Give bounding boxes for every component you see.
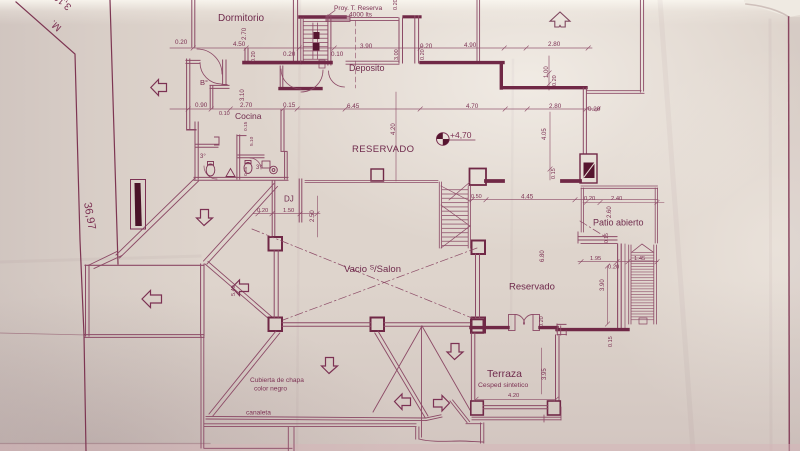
- svg-text:0.15: 0.15: [604, 233, 610, 243]
- svg-text:0.20: 0.20: [584, 196, 595, 202]
- svg-text:3°: 3°: [200, 154, 206, 160]
- svg-text:3.00: 3.00: [394, 49, 400, 60]
- svg-text:0.90: 0.90: [195, 102, 208, 109]
- svg-text:0.20: 0.20: [251, 51, 257, 62]
- svg-text:3.90: 3.90: [360, 43, 373, 50]
- svg-text:0.20: 0.20: [552, 75, 558, 86]
- svg-text:1.95: 1.95: [590, 256, 601, 262]
- svg-text:0.20: 0.20: [539, 316, 545, 327]
- svg-text:3.95: 3.95: [542, 368, 548, 380]
- svg-text:DJ: DJ: [284, 195, 294, 204]
- svg-text:2.80: 2.80: [549, 103, 562, 110]
- svg-text:36,97: 36,97: [81, 201, 98, 230]
- svg-text:4.70: 4.70: [466, 103, 479, 110]
- svg-text:0.20: 0.20: [608, 265, 619, 271]
- svg-text:Dormitorio: Dormitorio: [218, 13, 265, 24]
- svg-text:0.10: 0.10: [219, 111, 230, 117]
- svg-text:2.80: 2.80: [548, 41, 561, 48]
- svg-text:2.70: 2.70: [241, 27, 248, 40]
- svg-text:Patio abierto: Patio abierto: [593, 218, 644, 228]
- svg-text:Vacio S/Salon: Vacio S/Salon: [344, 264, 401, 275]
- svg-text:1.00: 1.00: [544, 66, 550, 78]
- svg-text:0.15: 0.15: [243, 121, 249, 131]
- svg-text:3,13: 3,13: [52, 0, 74, 12]
- svg-text:4.05: 4.05: [542, 128, 548, 140]
- svg-text:0.15: 0.15: [608, 336, 614, 347]
- svg-text:6.80: 6.80: [540, 250, 546, 262]
- svg-text:RESERVADO: RESERVADO: [352, 144, 414, 155]
- svg-text:Cubierta de chapa: Cubierta de chapa: [250, 377, 304, 384]
- svg-text:M.: M.: [48, 17, 64, 33]
- svg-text:4.45: 4.45: [521, 194, 534, 201]
- svg-text:0.20: 0.20: [588, 106, 601, 113]
- svg-text:1.50: 1.50: [283, 208, 294, 214]
- svg-text:Cocina: Cocina: [235, 111, 262, 121]
- svg-text:Cesped sintetico: Cesped sintetico: [478, 382, 528, 389]
- svg-text:5.40: 5.40: [231, 285, 237, 296]
- svg-text:Terraza: Terraza: [487, 368, 522, 380]
- svg-text:Reservado: Reservado: [509, 282, 555, 293]
- svg-text:5.10: 5.10: [249, 136, 255, 146]
- svg-text:0.20: 0.20: [175, 39, 188, 46]
- svg-text:0.50: 0.50: [471, 194, 482, 200]
- svg-text:6.45: 6.45: [347, 103, 360, 110]
- svg-text:0.20: 0.20: [420, 43, 433, 50]
- svg-text:Deposito: Deposito: [349, 63, 385, 73]
- svg-text:2.70: 2.70: [240, 102, 253, 109]
- svg-text:3.10: 3.10: [240, 89, 246, 101]
- svg-text:0.10: 0.10: [331, 51, 344, 58]
- svg-text:+4,70: +4,70: [450, 130, 472, 140]
- svg-text:0.20: 0.20: [420, 49, 426, 60]
- svg-text:canaleta: canaleta: [246, 410, 271, 417]
- svg-text:4.50: 4.50: [233, 41, 246, 48]
- svg-text:2.40: 2.40: [611, 196, 622, 202]
- svg-text:0.15: 0.15: [551, 168, 557, 179]
- svg-text:2.50: 2.50: [310, 210, 316, 222]
- svg-text:B°: B°: [200, 78, 208, 87]
- svg-text:0.65: 0.65: [243, 166, 249, 176]
- svg-text:4.20: 4.20: [508, 393, 519, 399]
- svg-text:3°: 3°: [256, 165, 262, 171]
- svg-text:4.90: 4.90: [464, 42, 477, 49]
- svg-text:4.20: 4.20: [391, 123, 397, 135]
- svg-text:color negro: color negro: [254, 386, 287, 393]
- svg-text:2.60: 2.60: [607, 206, 613, 218]
- svg-text:0.15: 0.15: [283, 102, 296, 109]
- svg-text:0.20: 0.20: [393, 0, 399, 10]
- svg-text:3.90: 3.90: [600, 279, 606, 291]
- svg-text:0.20: 0.20: [257, 208, 268, 214]
